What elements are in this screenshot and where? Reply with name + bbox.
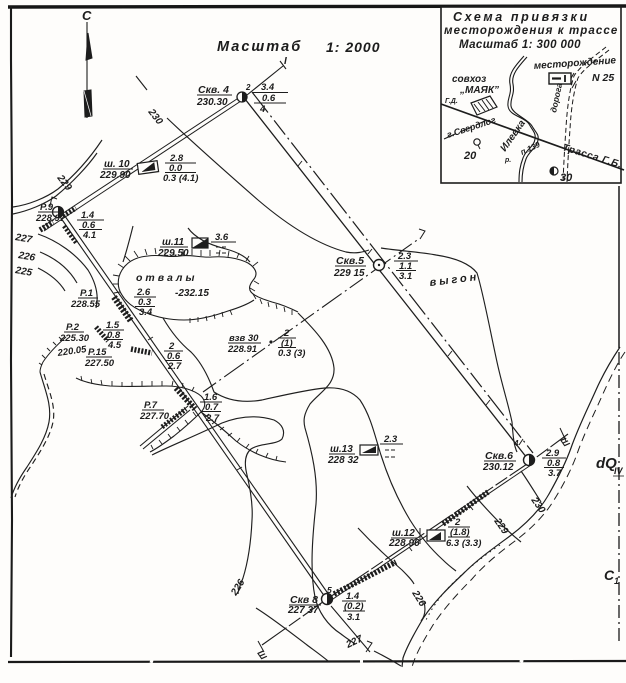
svg-text:совхоз: совхоз — [452, 74, 486, 85]
svg-text:228.97: 228.97 — [35, 213, 66, 224]
svg-text:Масштаб: Масштаб — [217, 39, 302, 55]
svg-text:взв 30: взв 30 — [229, 333, 259, 344]
svg-text:Масштаб 1: 300 000: Масштаб 1: 300 000 — [459, 39, 581, 51]
svg-text:Р.15: Р.15 — [88, 347, 107, 358]
svg-text:230.12: 230.12 — [482, 462, 514, 473]
svg-text:отвалы: отвалы — [136, 272, 197, 284]
svg-text:-232.15: -232.15 — [175, 288, 209, 299]
svg-text:229.90: 229.90 — [99, 170, 131, 181]
svg-text:Р.2: Р.2 — [66, 322, 80, 333]
svg-text:4: 4 — [259, 104, 266, 115]
svg-text:2: 2 — [245, 83, 251, 92]
svg-text:3.6: 3.6 — [215, 232, 229, 243]
svg-text:227 37: 227 37 — [287, 605, 319, 616]
svg-text:4.5: 4.5 — [107, 340, 122, 351]
svg-text:C: C — [82, 8, 92, 23]
svg-text:1: 2000: 1: 2000 — [326, 39, 380, 55]
svg-text:2.7: 2.7 — [205, 413, 220, 424]
svg-text:Г.Д.: Г.Д. — [445, 98, 458, 105]
svg-text:230.30: 230.30 — [196, 97, 228, 108]
svg-text:„МАЯК”: „МАЯК” — [459, 85, 499, 96]
svg-text:229 15: 229 15 — [333, 268, 365, 279]
svg-text:3.1: 3.1 — [399, 271, 412, 282]
svg-text:ш.13: ш.13 — [330, 444, 353, 455]
svg-text:Р.1: Р.1 — [80, 288, 93, 299]
svg-text:3.4: 3.4 — [261, 82, 275, 93]
svg-text:4.1: 4.1 — [82, 230, 96, 241]
svg-text:6.3 (3.3): 6.3 (3.3) — [446, 538, 481, 549]
svg-text:р.: р. — [504, 157, 511, 164]
svg-text:N 25: N 25 — [592, 72, 614, 84]
svg-text:227.50: 227.50 — [84, 358, 115, 369]
svg-text:0.3 (3): 0.3 (3) — [278, 348, 305, 359]
svg-text:5: 5 — [327, 585, 332, 595]
svg-text:Скв.5: Скв.5 — [336, 255, 364, 267]
svg-text:20: 20 — [463, 150, 477, 162]
svg-text:Скв. 4: Скв. 4 — [198, 84, 229, 96]
svg-text:IV: IV — [614, 466, 624, 476]
svg-text:I: I — [284, 56, 287, 67]
svg-text:Р.9: Р.9 — [40, 202, 54, 213]
svg-text:228.96: 228.96 — [388, 538, 420, 549]
svg-text:(1.8): (1.8) — [450, 527, 470, 538]
svg-text:Р.7: Р.7 — [144, 400, 158, 411]
svg-text:0.3 (4.1): 0.3 (4.1) — [163, 173, 198, 184]
svg-text:Схема привязки: Схема привязки — [453, 10, 590, 24]
svg-text:227.70: 227.70 — [139, 411, 170, 422]
svg-text:ш.11: ш.11 — [162, 237, 184, 248]
svg-text:228.91: 228.91 — [227, 344, 257, 355]
svg-text:1: 1 — [614, 576, 619, 586]
svg-text:2.3: 2.3 — [383, 434, 398, 445]
svg-text:229.50: 229.50 — [157, 248, 189, 259]
svg-text:ш. 10: ш. 10 — [104, 159, 130, 170]
svg-text:0.6: 0.6 — [262, 93, 276, 104]
svg-text:(0.2): (0.2) — [344, 601, 364, 612]
svg-text:3.1: 3.1 — [347, 612, 360, 623]
svg-text:228 32: 228 32 — [327, 455, 359, 466]
svg-text:Скв.6: Скв.6 — [485, 450, 513, 462]
svg-text:месторождения к трассе: месторождения к трассе — [444, 25, 618, 37]
svg-text:2.7: 2.7 — [167, 361, 182, 372]
svg-text:30: 30 — [560, 172, 573, 184]
